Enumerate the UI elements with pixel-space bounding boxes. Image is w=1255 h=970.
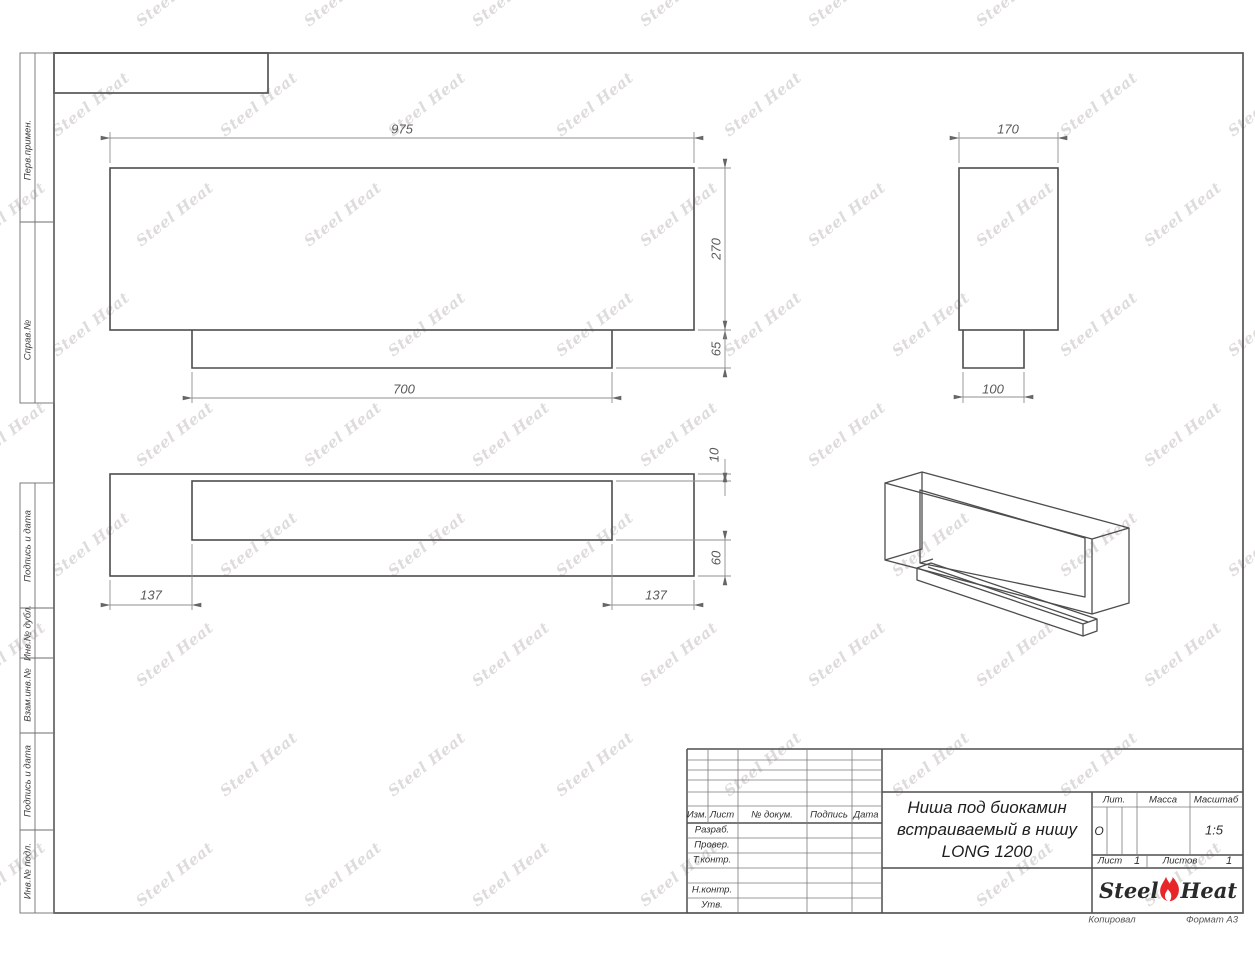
strip-label-podpis-data-2: Подпись и дата (23, 745, 34, 817)
tb-mass-label: Масса (1149, 795, 1177, 806)
tb-col-list: Лист (710, 810, 734, 821)
tb-col-izm: Изм. (687, 810, 707, 821)
tb-sheets-label: Листов (1163, 856, 1198, 867)
tb-col-sign: Подпись (810, 810, 848, 821)
document-title-line3: LONG 1200 (942, 841, 1033, 863)
flame-icon (1158, 876, 1182, 903)
brand-part2: Heat (1181, 878, 1238, 903)
copied-label: Копировал (1088, 915, 1135, 926)
tb-row-tcontrol: Т.контр. (693, 855, 731, 866)
strip-label-vzam-inv: Взам.инв.№ (23, 668, 34, 721)
document-title-line2: встраиваемый в нишу (897, 819, 1077, 841)
strip-label-podpis-data-1: Подпись и дата (23, 510, 34, 582)
tb-scale-value: 1:5 (1205, 823, 1223, 838)
dim-base-depth: 100 (982, 382, 1004, 397)
tb-lit-value: О (1094, 824, 1103, 838)
tb-col-doc-no: № докум. (751, 810, 793, 821)
brand-logo: Steel Heat (1093, 868, 1243, 913)
dim-wall-back: 60 (709, 551, 724, 565)
strip-label-inv-podl: Инв.№ подл. (23, 843, 34, 899)
tb-row-approved: Утв. (701, 900, 723, 911)
tb-row-ncontrol: Н.контр. (692, 885, 732, 896)
tb-row-checked: Провер. (694, 840, 729, 851)
strip-label-sprav-no: Справ.№ (23, 320, 34, 361)
dim-side-offset-right: 137 (645, 588, 667, 603)
dim-side-offset-left: 137 (140, 588, 162, 603)
tb-row-developed: Разраб. (695, 825, 729, 836)
text-layer: 975 270 65 700 170 100 10 60 137 137 Пер… (0, 0, 1255, 970)
tb-sheets-value: 1 (1226, 855, 1232, 867)
tb-sheet-label: Лист (1098, 856, 1122, 867)
format-label: Формат А3 (1186, 915, 1238, 926)
drawing-sheet: { "watermark": { "text": "Steel Heat" },… (0, 0, 1255, 970)
tb-col-date: Дата (853, 810, 878, 821)
brand-part1: Steel (1099, 878, 1159, 903)
dim-base-width: 700 (393, 382, 415, 397)
tb-scale-label: Масштаб (1194, 795, 1238, 806)
dim-overall-depth: 170 (997, 122, 1019, 137)
dim-base-height: 65 (709, 342, 724, 356)
document-title: Ниша под биокамин встраиваемый в нишу LO… (882, 792, 1092, 868)
strip-label-inv-dubl: Инв.№ дубл. (23, 605, 34, 661)
tb-sheet-value: 1 (1134, 855, 1140, 867)
dim-wall-front: 10 (707, 448, 722, 462)
dim-overall-width: 975 (391, 122, 413, 137)
tb-lit-label: Лит. (1103, 795, 1125, 806)
strip-label-perv-primen: Перв.примен. (23, 120, 34, 181)
document-title-line1: Ниша под биокамин (907, 797, 1066, 819)
dim-overall-height: 270 (709, 238, 724, 260)
